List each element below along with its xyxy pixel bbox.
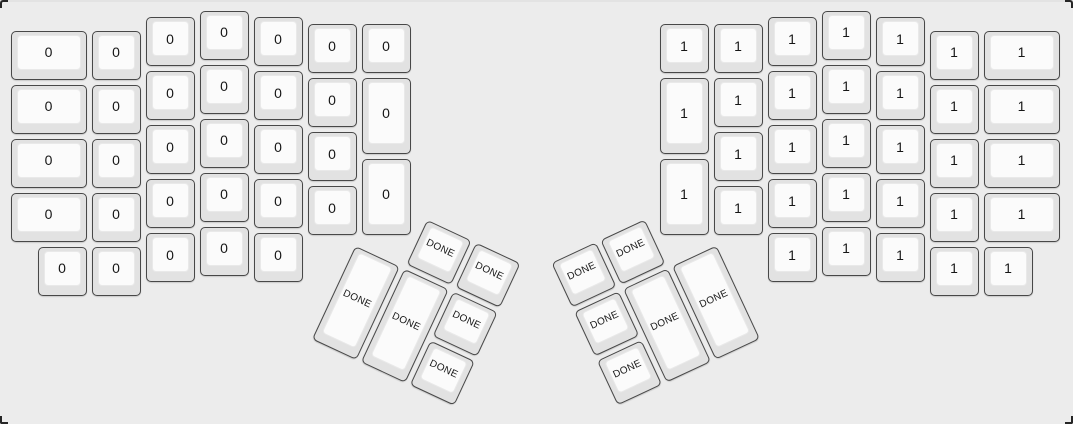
keycap-top-surface: 1: [936, 251, 973, 286]
key-label: 1: [734, 147, 742, 161]
keycap-right-main[interactable]: 1: [768, 125, 817, 174]
keycap-right-main[interactable]: 1: [714, 78, 763, 127]
keycap-top-surface: 1: [666, 163, 703, 225]
key-label: 0: [274, 248, 282, 262]
keycap-left-main[interactable]: 0: [254, 17, 303, 66]
keycap-right-main[interactable]: 1: [714, 24, 763, 73]
keycap-top-surface: 0: [260, 237, 297, 272]
keycap-top-surface: 1: [720, 190, 757, 225]
keycap-top-surface: 1: [990, 197, 1054, 232]
keycap-top-surface: 0: [260, 129, 297, 164]
keycap-top-surface: 1: [990, 35, 1054, 70]
keycap-top-surface: 0: [98, 143, 135, 178]
key-label: 1: [950, 45, 958, 59]
keycap-right-main[interactable]: 1: [768, 17, 817, 66]
keycap-left-main[interactable]: 0: [200, 173, 249, 222]
keycap-top-surface: DONE: [558, 248, 606, 295]
key-label: 1: [1018, 207, 1026, 221]
keycap-right-main[interactable]: 1: [930, 31, 979, 80]
keycap-left-main[interactable]: 0: [92, 85, 141, 134]
keycap-top-surface: DONE: [465, 248, 513, 295]
keycap-top-surface: 1: [936, 89, 973, 124]
key-label: 1: [680, 39, 688, 53]
keycap-top-surface: 0: [206, 123, 243, 158]
keycap-left-main[interactable]: 0: [11, 31, 87, 80]
keycap-top-surface: 0: [314, 136, 351, 171]
key-label: 0: [382, 39, 390, 53]
key-label: 1: [896, 248, 904, 262]
keycap-left-main[interactable]: 0: [200, 227, 249, 276]
keycap-top-surface: 1: [990, 89, 1054, 124]
keycap-top-surface: 0: [152, 237, 189, 272]
keycap-top-surface: 1: [882, 183, 919, 218]
key-label: 0: [58, 261, 66, 275]
keycap-top-surface: 1: [666, 28, 703, 63]
keycap-right-main[interactable]: 1: [768, 179, 817, 228]
keycap-left-main[interactable]: 0: [92, 31, 141, 80]
keycap-top-surface: 0: [368, 163, 405, 225]
keycap-top-surface: 1: [828, 69, 865, 104]
key-label: 1: [842, 25, 850, 39]
keycap-top-surface: DONE: [416, 225, 464, 272]
keycap-left-main[interactable]: 0: [146, 71, 195, 120]
keycap-top-surface: DONE: [442, 297, 490, 344]
corner-mark-top-left: [0, 0, 8, 8]
key-label: DONE: [473, 261, 505, 283]
key-label: 1: [1004, 261, 1012, 275]
keycap-right-main[interactable]: 1: [822, 119, 871, 168]
key-label: 1: [896, 32, 904, 46]
key-label: 0: [220, 25, 228, 39]
keycap-top-surface: DONE: [581, 297, 629, 344]
keycap-top-surface: DONE: [603, 346, 651, 393]
keycap-top-surface: 1: [936, 143, 973, 178]
key-label: 0: [112, 207, 120, 221]
keycap-top-surface: 1: [774, 75, 811, 110]
key-label: 0: [112, 45, 120, 59]
keycap-left-main[interactable]: 0: [92, 139, 141, 188]
key-label: 1: [734, 39, 742, 53]
keycap-top-surface: 1: [774, 129, 811, 164]
key-label: 0: [220, 79, 228, 93]
key-label: 0: [328, 201, 336, 215]
keycap-top-surface: 0: [152, 183, 189, 218]
keycap-top-surface: 0: [98, 197, 135, 232]
key-label: 0: [166, 140, 174, 154]
key-label: 0: [45, 153, 53, 167]
key-label: 1: [680, 187, 688, 201]
key-label: 0: [45, 207, 53, 221]
keycap-right-main[interactable]: 1: [876, 125, 925, 174]
keycap-right-main[interactable]: 1: [984, 85, 1060, 134]
keycap-left-main[interactable]: 0: [362, 159, 411, 235]
key-label: DONE: [390, 312, 422, 334]
key-label: 0: [274, 32, 282, 46]
key-label: 1: [788, 86, 796, 100]
keycap-left-main[interactable]: 0: [362, 78, 411, 154]
keycap-top-surface: 1: [882, 237, 919, 272]
key-label: 0: [220, 133, 228, 147]
key-label: 0: [382, 187, 390, 201]
keycap-top-surface: 0: [314, 190, 351, 225]
key-label: 1: [788, 194, 796, 208]
keycap-top-surface: 1: [720, 82, 757, 117]
key-label: 1: [896, 194, 904, 208]
key-label: 1: [842, 133, 850, 147]
keycap-right-main[interactable]: 1: [768, 71, 817, 120]
key-label: 0: [274, 140, 282, 154]
keycap-top-surface: 0: [206, 177, 243, 212]
keycap-right-main[interactable]: 1: [930, 247, 979, 296]
keycap-right-main[interactable]: 1: [930, 139, 979, 188]
keycap-top-surface: 0: [260, 75, 297, 110]
keycap-left-main[interactable]: 0: [146, 125, 195, 174]
keycap-left-main[interactable]: 0: [200, 65, 249, 114]
keycap-left-main[interactable]: 0: [254, 71, 303, 120]
keycap-right-main[interactable]: 1: [660, 24, 709, 73]
key-label: 0: [328, 147, 336, 161]
keycap-left-main[interactable]: 0: [146, 179, 195, 228]
keycap-right-main[interactable]: 1: [930, 85, 979, 134]
keycap-top-surface: 1: [882, 75, 919, 110]
key-label: 1: [1018, 99, 1026, 113]
key-label: 1: [788, 140, 796, 154]
key-label: 1: [788, 32, 796, 46]
key-label: DONE: [612, 359, 644, 381]
key-label: 1: [950, 153, 958, 167]
keycap-right-main[interactable]: 1: [876, 233, 925, 282]
key-label: DONE: [589, 310, 621, 332]
keycap-top-surface: 1: [936, 35, 973, 70]
key-label: 1: [842, 241, 850, 255]
keycap-top-surface: 0: [368, 28, 405, 63]
key-label: 0: [45, 99, 53, 113]
keycap-top-surface: 1: [774, 21, 811, 56]
key-label: 0: [328, 93, 336, 107]
key-label: 0: [382, 106, 390, 120]
key-label: 1: [788, 248, 796, 262]
key-label: DONE: [615, 238, 647, 260]
keycap-top-surface: 0: [17, 35, 81, 70]
keycap-top-surface: 0: [17, 143, 81, 178]
keycap-top-surface: 1: [936, 197, 973, 232]
keycap-top-surface: 1: [828, 231, 865, 266]
keycap-right-main[interactable]: 1: [714, 132, 763, 181]
keycap-top-surface: DONE: [419, 346, 467, 393]
key-label: DONE: [566, 261, 598, 283]
key-label: DONE: [698, 289, 730, 311]
keycap-top-surface: 1: [990, 251, 1027, 286]
keycap-right-main[interactable]: 1: [876, 179, 925, 228]
keycap-top-surface: DONE: [607, 225, 655, 272]
keycap-top-surface: 1: [828, 177, 865, 212]
keycap-top-surface: 0: [98, 35, 135, 70]
key-label: 0: [166, 248, 174, 262]
keycap-left-main[interactable]: 0: [308, 186, 357, 235]
keycap-left-main[interactable]: 0: [146, 17, 195, 66]
keycap-top-surface: 1: [882, 129, 919, 164]
keycap-top-surface: 0: [206, 15, 243, 50]
key-label: DONE: [341, 289, 373, 311]
key-label: DONE: [428, 359, 460, 381]
key-label: 1: [680, 106, 688, 120]
keycap-left-main[interactable]: 0: [308, 24, 357, 73]
keycap-top-surface: 0: [260, 21, 297, 56]
keycap-left-main[interactable]: 0: [92, 247, 141, 296]
key-label: DONE: [649, 312, 681, 334]
keycap-top-surface: 1: [666, 82, 703, 144]
key-label: 0: [274, 194, 282, 208]
keycap-left-main[interactable]: 0: [11, 139, 87, 188]
keycap-right-main[interactable]: 1: [768, 233, 817, 282]
keycap-left-main[interactable]: 0: [362, 24, 411, 73]
corner-mark-bottom-left: [0, 416, 8, 424]
keycap-top-surface: 1: [774, 237, 811, 272]
keycap-right-main[interactable]: 1: [876, 17, 925, 66]
keycap-top-surface: 1: [882, 21, 919, 56]
keycap-left-main[interactable]: 0: [200, 119, 249, 168]
keycap-top-surface: 0: [206, 231, 243, 266]
keycap-right-main[interactable]: 1: [822, 227, 871, 276]
key-label: 1: [950, 207, 958, 221]
keycap-left-main[interactable]: 0: [11, 193, 87, 242]
corner-mark-bottom-right: [1065, 416, 1073, 424]
key-label: 1: [950, 99, 958, 113]
keycap-top-surface: 1: [720, 136, 757, 171]
keycap-top-surface: 1: [828, 15, 865, 50]
key-label: 1: [1018, 153, 1026, 167]
key-label: DONE: [424, 238, 456, 260]
keycap-right-main[interactable]: 1: [876, 71, 925, 120]
key-label: 1: [842, 79, 850, 93]
key-label: 1: [896, 140, 904, 154]
keycap-right-main[interactable]: 1: [714, 186, 763, 235]
keycap-right-main[interactable]: 1: [984, 247, 1033, 296]
keycap-top-surface: 0: [44, 251, 81, 286]
keycap-right-main[interactable]: 1: [822, 11, 871, 60]
keycap-left-main[interactable]: 0: [38, 247, 87, 296]
key-label: 1: [734, 201, 742, 215]
keycap-top-surface: 0: [98, 89, 135, 124]
key-label: 0: [166, 32, 174, 46]
corner-mark-top-right: [1065, 0, 1073, 8]
key-label: 0: [166, 194, 174, 208]
keycap-right-main[interactable]: 1: [822, 173, 871, 222]
key-label: 0: [220, 241, 228, 255]
keycap-left-main[interactable]: 0: [254, 233, 303, 282]
keycap-left-main[interactable]: 0: [200, 11, 249, 60]
keycap-top-surface: 0: [314, 82, 351, 117]
keycap-top-surface: 0: [17, 89, 81, 124]
keycap-left-main[interactable]: 0: [308, 78, 357, 127]
keyboard-layout-canvas: 0000000000000000000000000000000011111111…: [0, 0, 1073, 424]
key-label: 1: [842, 187, 850, 201]
keycap-top-surface: 0: [98, 251, 135, 286]
keycap-right-main[interactable]: 1: [984, 139, 1060, 188]
key-label: 1: [896, 86, 904, 100]
key-label: 0: [220, 187, 228, 201]
keycap-top-surface: 0: [314, 28, 351, 63]
key-label: 0: [112, 99, 120, 113]
keycap-top-surface: 0: [260, 183, 297, 218]
keycap-top-surface: 0: [152, 21, 189, 56]
keycap-top-surface: 1: [990, 143, 1054, 178]
keycap-right-main[interactable]: 1: [822, 65, 871, 114]
key-label: 0: [112, 153, 120, 167]
keycap-left-main[interactable]: 0: [92, 193, 141, 242]
keycap-top-surface: 0: [368, 82, 405, 144]
key-label: 1: [734, 93, 742, 107]
keycap-left-main[interactable]: 0: [11, 85, 87, 134]
key-label: 0: [328, 39, 336, 53]
key-label: 0: [166, 86, 174, 100]
key-label: 1: [950, 261, 958, 275]
keycap-right-main[interactable]: 1: [984, 193, 1060, 242]
keycap-top-surface: 0: [17, 197, 81, 232]
keycap-left-main[interactable]: 0: [254, 125, 303, 174]
keycap-top-surface: 0: [206, 69, 243, 104]
keycap-top-surface: 0: [152, 129, 189, 164]
keycap-top-surface: 1: [774, 183, 811, 218]
keycap-right-main[interactable]: 1: [930, 193, 979, 242]
key-label: 0: [274, 86, 282, 100]
keycap-right-main[interactable]: 1: [660, 159, 709, 235]
key-label: 1: [1018, 45, 1026, 59]
key-label: 0: [45, 45, 53, 59]
keycap-top-surface: 1: [720, 28, 757, 63]
keycap-right-main[interactable]: 1: [984, 31, 1060, 80]
keycap-top-surface: 1: [828, 123, 865, 158]
keycap-left-main[interactable]: 0: [254, 179, 303, 228]
key-label: 0: [112, 261, 120, 275]
keycap-top-surface: 0: [152, 75, 189, 110]
keycap-left-main[interactable]: 0: [146, 233, 195, 282]
key-label: DONE: [450, 310, 482, 332]
keycap-right-main[interactable]: 1: [660, 78, 709, 154]
keycap-left-main[interactable]: 0: [308, 132, 357, 181]
